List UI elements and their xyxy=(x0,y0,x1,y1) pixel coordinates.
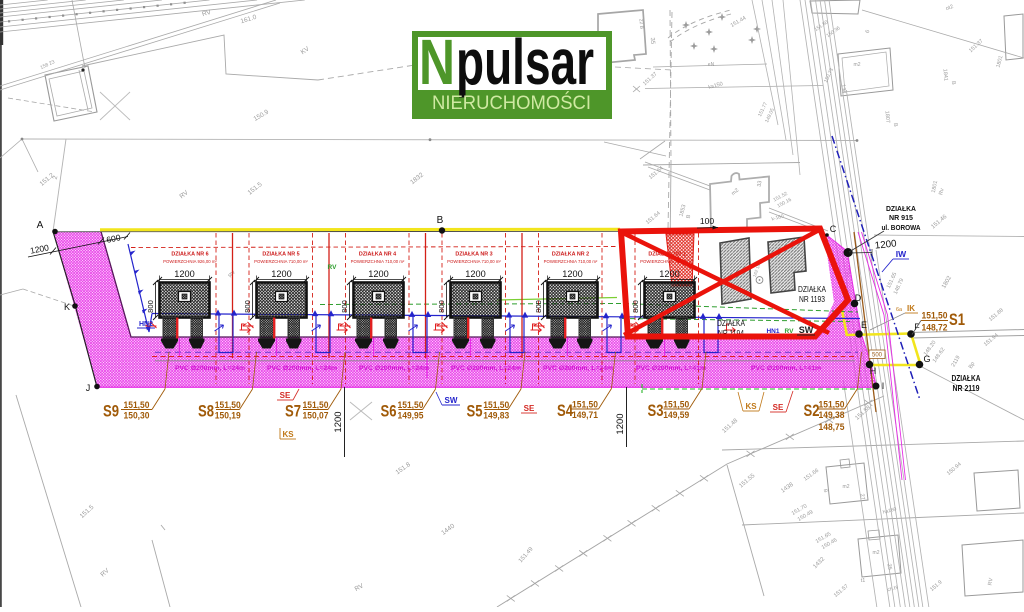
svg-text:H: H xyxy=(870,366,877,376)
svg-text:DZIAŁKA: DZIAŁKA xyxy=(798,285,827,294)
svg-text:1200: 1200 xyxy=(659,269,679,279)
svg-text:PVC Ø200mm, L=24m: PVC Ø200mm, L=24m xyxy=(175,365,245,372)
svg-text:ul. BOROWA: ul. BOROWA xyxy=(882,223,921,232)
svg-text:6a: 6a xyxy=(896,307,903,313)
svg-text:800: 800 xyxy=(534,300,543,313)
svg-text:B: B xyxy=(437,215,444,226)
svg-text:35: 35 xyxy=(649,37,656,45)
svg-text:27: 27 xyxy=(858,493,865,500)
svg-text:800: 800 xyxy=(437,300,446,313)
svg-text:500: 500 xyxy=(872,353,883,359)
svg-text:POWIERZCHNIA 926,00 m²: POWIERZCHNIA 926,00 m² xyxy=(163,259,217,264)
svg-text:POWIERZCHNIA 710,00 m²: POWIERZCHNIA 710,00 m² xyxy=(447,259,501,264)
svg-text:K: K xyxy=(64,302,70,312)
svg-text:1841: 1841 xyxy=(941,69,948,82)
svg-text:DZIAŁKA NR 4: DZIAŁKA NR 4 xyxy=(359,252,396,258)
svg-text:C: C xyxy=(830,224,837,234)
svg-text:148,72: 148,72 xyxy=(922,323,948,334)
svg-text:S6: S6 xyxy=(381,403,397,421)
svg-text:eN: eN xyxy=(708,62,715,68)
svg-text:DZIAŁKA NR 6: DZIAŁKA NR 6 xyxy=(171,252,208,258)
svg-text:DZIAŁKA: DZIAŁKA xyxy=(886,204,917,213)
svg-text:SE: SE xyxy=(773,403,784,412)
svg-text:NR 1193: NR 1193 xyxy=(799,295,825,304)
svg-text:151,50: 151,50 xyxy=(922,311,948,322)
svg-text:149,83: 149,83 xyxy=(483,411,509,422)
svg-text:1200: 1200 xyxy=(368,269,388,279)
svg-text:DZIAŁKA NR 5: DZIAŁKA NR 5 xyxy=(262,252,299,258)
svg-text:POWIERZCHNIA 710,00 m²: POWIERZCHNIA 710,00 m² xyxy=(544,259,598,264)
svg-text:22 B: 22 B xyxy=(638,19,645,30)
svg-text:PVC Ø200mm, L=24m: PVC Ø200mm, L=24m xyxy=(543,365,613,372)
svg-text:1200: 1200 xyxy=(465,269,485,279)
svg-text:t1: t1 xyxy=(861,578,866,584)
svg-text:33: 33 xyxy=(757,180,764,187)
svg-text:E: E xyxy=(861,320,867,330)
svg-text:NIERUCHOMOŚCI: NIERUCHOMOŚCI xyxy=(432,90,591,114)
svg-text:150,30: 150,30 xyxy=(124,411,150,422)
svg-text:POWIERZCHNIA 710,00 m²: POWIERZCHNIA 710,00 m² xyxy=(254,259,308,264)
svg-text:m2: m2 xyxy=(854,62,861,68)
svg-text:SW: SW xyxy=(799,325,814,335)
svg-text:DZIAŁKA NR 3: DZIAŁKA NR 3 xyxy=(455,252,492,258)
svg-text:RV: RV xyxy=(328,264,338,271)
svg-text:PVC Ø200mm, L=24m: PVC Ø200mm, L=24m xyxy=(451,365,521,372)
svg-text:25: 25 xyxy=(885,563,892,570)
svg-text:800: 800 xyxy=(146,300,155,313)
svg-text:1200: 1200 xyxy=(333,411,344,432)
svg-text:1200: 1200 xyxy=(874,238,897,251)
svg-text:1200: 1200 xyxy=(615,413,626,434)
svg-text:1200: 1200 xyxy=(174,269,194,279)
svg-text:800: 800 xyxy=(631,300,640,313)
svg-text:800: 800 xyxy=(340,300,349,313)
svg-text:S3: S3 xyxy=(648,402,664,420)
svg-text:PVC Ø200mm, L=41m: PVC Ø200mm, L=41m xyxy=(751,365,821,372)
svg-text:N: N xyxy=(419,26,455,98)
svg-text:DZIAŁKA: DZIAŁKA xyxy=(952,373,981,383)
svg-text:800: 800 xyxy=(243,300,252,313)
svg-text:HN1: HN1 xyxy=(766,328,779,335)
svg-text:J: J xyxy=(86,383,91,393)
svg-text:SW: SW xyxy=(445,396,458,405)
svg-text:IW: IW xyxy=(896,249,907,259)
svg-text:S7: S7 xyxy=(285,403,301,421)
svg-text:1200: 1200 xyxy=(271,269,291,279)
svg-text:D: D xyxy=(855,293,862,303)
svg-text:IK: IK xyxy=(907,304,915,313)
svg-text:RV: RV xyxy=(785,328,795,335)
svg-text:149,71: 149,71 xyxy=(572,410,599,421)
svg-text:134: 134 xyxy=(840,84,847,94)
svg-text:1807: 1807 xyxy=(883,111,890,124)
svg-text:PVC Ø200mm, L=41m: PVC Ø200mm, L=41m xyxy=(636,365,706,372)
svg-text:DZIAŁKA: DZIAŁKA xyxy=(717,319,746,328)
svg-text:KS: KS xyxy=(282,430,294,439)
svg-text:150,19: 150,19 xyxy=(215,411,241,422)
svg-text:I: I xyxy=(882,381,885,391)
svg-text:PVC Ø200mm, L=24m: PVC Ø200mm, L=24m xyxy=(359,365,429,372)
svg-text:NR 2119: NR 2119 xyxy=(953,383,980,393)
svg-text:pulsar: pulsar xyxy=(456,26,594,98)
svg-text:100: 100 xyxy=(700,216,714,226)
svg-text:S5: S5 xyxy=(467,403,483,421)
svg-text:149,38: 149,38 xyxy=(819,410,845,421)
svg-text:NR 915: NR 915 xyxy=(889,213,913,222)
svg-text:PVC Ø200mm, L=24m: PVC Ø200mm, L=24m xyxy=(267,365,337,372)
svg-text:148,75: 148,75 xyxy=(819,422,846,433)
svg-text:S1: S1 xyxy=(949,311,965,329)
svg-text:A: A xyxy=(37,220,44,231)
svg-text:1200: 1200 xyxy=(562,269,582,279)
svg-text:S8: S8 xyxy=(198,403,214,421)
svg-text:150,07: 150,07 xyxy=(303,411,329,422)
svg-text:POWIERZCHNIA 710,00 m²: POWIERZCHNIA 710,00 m² xyxy=(351,259,405,264)
svg-text:SE: SE xyxy=(280,391,291,400)
svg-text:m2: m2 xyxy=(873,550,880,556)
svg-text:m2: m2 xyxy=(843,484,850,490)
svg-text:KS: KS xyxy=(745,402,757,411)
svg-text:DZIAŁKA NR 2: DZIAŁKA NR 2 xyxy=(552,252,589,258)
svg-text:149,95: 149,95 xyxy=(398,411,425,422)
svg-text:149,59: 149,59 xyxy=(663,410,689,421)
svg-text:G: G xyxy=(923,354,930,364)
svg-text:S9: S9 xyxy=(103,403,119,421)
svg-text:SE: SE xyxy=(524,404,535,413)
svg-text:HN2: HN2 xyxy=(139,321,153,328)
svg-text:S2: S2 xyxy=(804,402,820,420)
